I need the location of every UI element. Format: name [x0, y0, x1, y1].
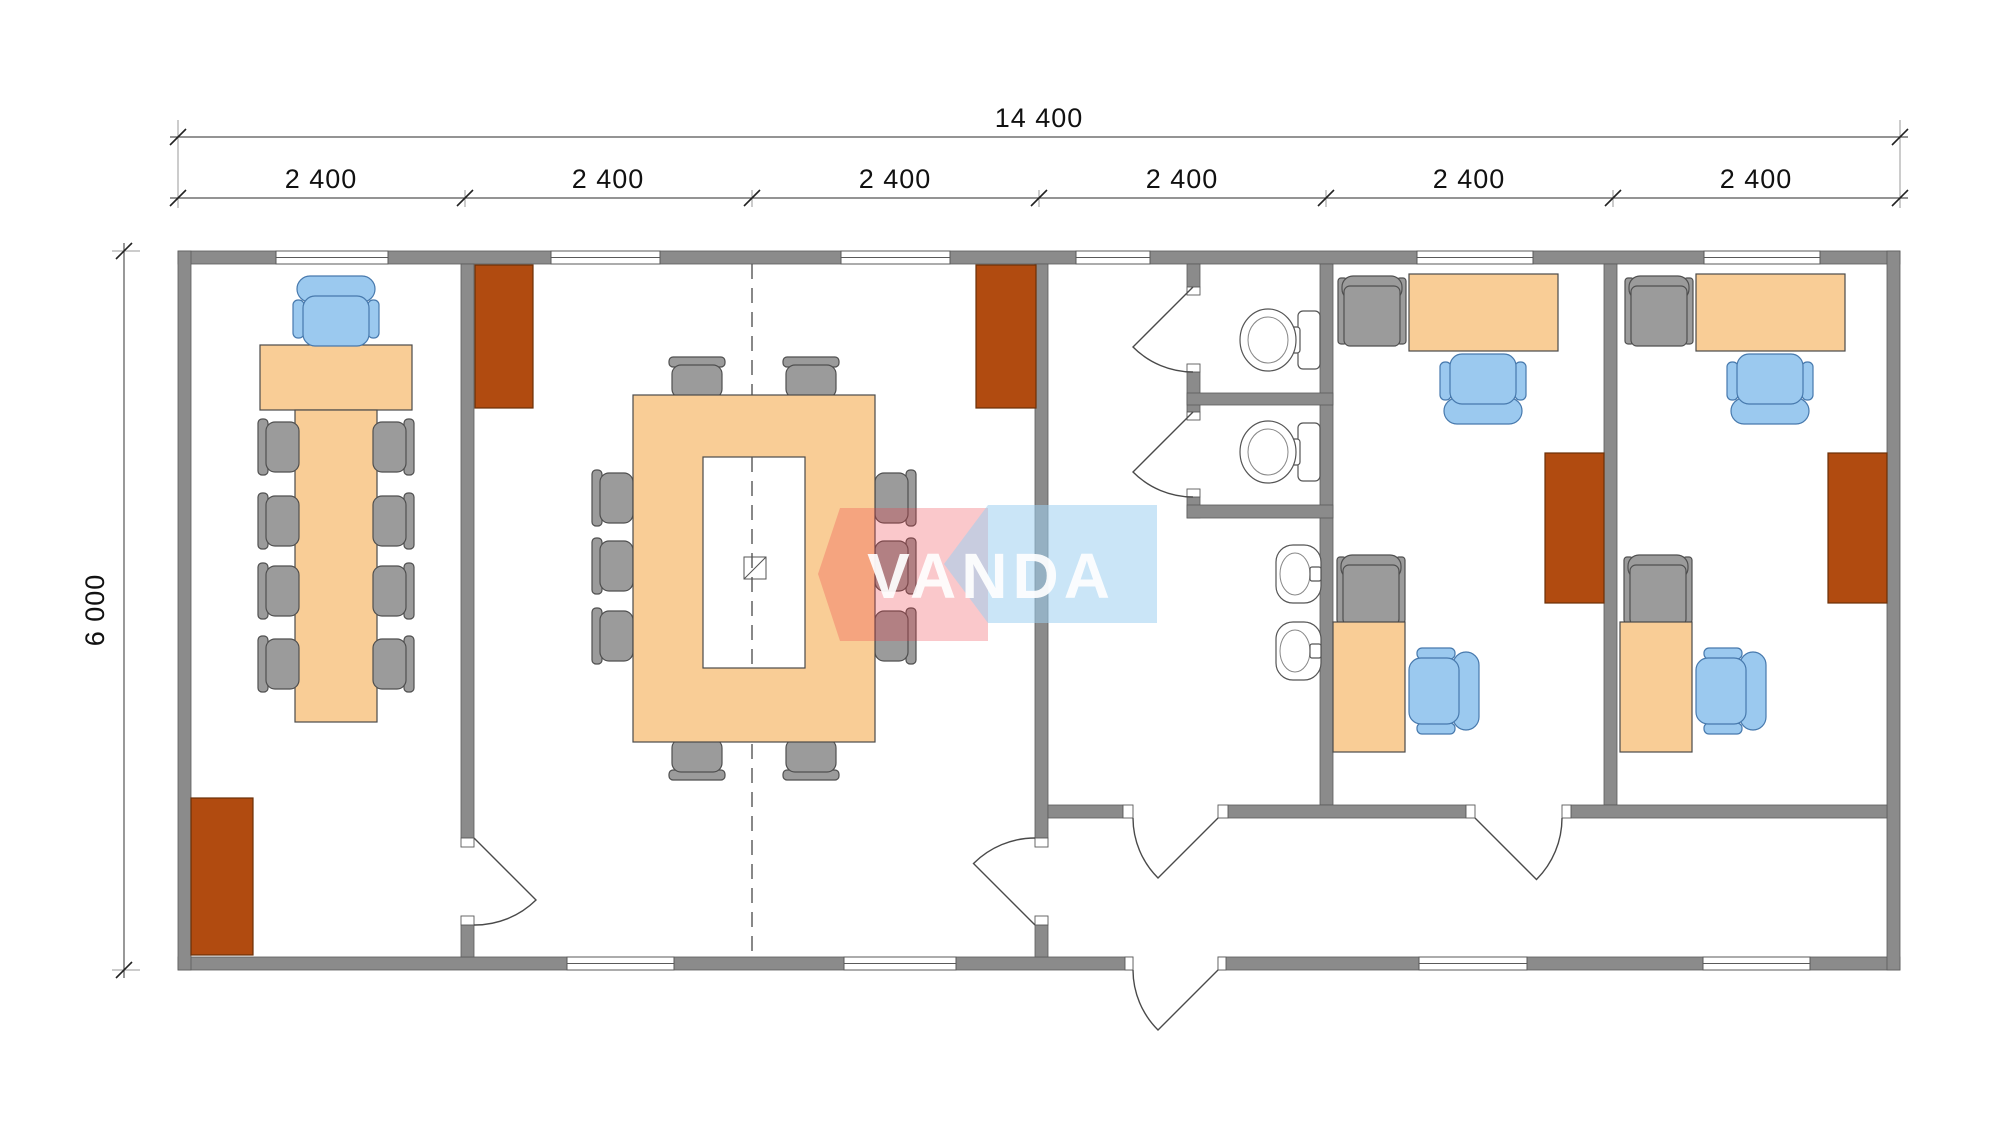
chair [258, 563, 299, 619]
radiator [191, 798, 253, 955]
radiator [976, 265, 1036, 408]
height-dimension-label: 6 000 [80, 574, 110, 647]
cabinet [1338, 276, 1406, 346]
chair [592, 538, 633, 594]
door-wc-stall-2 [1133, 412, 1193, 497]
chair [783, 739, 839, 780]
exterior-wall-top [178, 251, 1900, 264]
chair [258, 419, 299, 475]
door-conference [974, 838, 1036, 925]
toilet [1240, 421, 1320, 483]
cabinet [1624, 555, 1692, 625]
sink [1276, 545, 1321, 603]
side-desk [1333, 622, 1405, 752]
toilet [1240, 309, 1320, 371]
corridor-wall [1048, 805, 1123, 818]
chair [783, 357, 839, 398]
chair [373, 636, 414, 692]
module-4-dimension-label: 2 400 [1146, 164, 1219, 194]
chair [258, 636, 299, 692]
door-room1 [474, 838, 536, 925]
chair [669, 357, 725, 398]
module-6-dimension-label: 2 400 [1720, 164, 1793, 194]
chair [373, 563, 414, 619]
desk [1409, 274, 1558, 351]
wall-wc-officeA [1320, 264, 1333, 805]
module-5-dimension-label: 2 400 [1433, 164, 1506, 194]
office-chair [293, 276, 379, 346]
window [1076, 251, 1150, 264]
window [276, 251, 388, 264]
office-b [1620, 274, 1887, 752]
door-washroom [1133, 818, 1218, 878]
window [567, 957, 674, 970]
wall-between-stalls [1187, 393, 1333, 405]
column-symbol [744, 557, 766, 579]
chair [373, 493, 414, 549]
window [1704, 251, 1820, 264]
exterior-wall-right [1887, 251, 1900, 970]
radiator [475, 265, 533, 408]
module-1-dimension-label: 2 400 [285, 164, 358, 194]
cabinet [1625, 276, 1693, 346]
radiator [1545, 453, 1604, 603]
window [841, 251, 950, 264]
exterior-wall-left [178, 251, 191, 970]
sink [1276, 622, 1321, 680]
watermark: VANDA [818, 505, 1157, 641]
desk [1696, 274, 1845, 351]
module-3-dimension-label: 2 400 [859, 164, 932, 194]
watermark-text: VANDA [867, 540, 1115, 612]
head-desk [260, 345, 412, 410]
side-desk [1620, 622, 1692, 752]
window [1703, 957, 1810, 970]
door-wc-stall-1 [1133, 287, 1193, 372]
meeting-office [191, 276, 414, 955]
window [1419, 957, 1527, 970]
module-2-dimension-label: 2 400 [572, 164, 645, 194]
window [1417, 251, 1533, 264]
chair [592, 470, 633, 526]
wc-block [1240, 309, 1321, 680]
chair [258, 493, 299, 549]
radiator [1828, 453, 1887, 603]
office-a [1333, 274, 1604, 752]
office-chair [1440, 354, 1526, 424]
floor-plan: 14 400 2 400 2 400 2 400 2 400 2 400 2 4… [0, 0, 2000, 1147]
wall-below-stalls [1187, 505, 1333, 518]
wall-room1-room2 [461, 264, 474, 838]
window [844, 957, 956, 970]
office-chair [1696, 648, 1766, 734]
entrance-door [1133, 970, 1218, 1030]
chair [669, 739, 725, 780]
office-chair [1409, 648, 1479, 734]
total-width-dimension-label: 14 400 [995, 103, 1084, 133]
cabinet [1337, 555, 1405, 625]
long-table [295, 410, 377, 722]
window [551, 251, 660, 264]
office-chair [1727, 354, 1813, 424]
chair [373, 419, 414, 475]
wall-officeA-officeB [1604, 264, 1617, 805]
chair [592, 608, 633, 664]
door-office-a [1475, 818, 1562, 880]
